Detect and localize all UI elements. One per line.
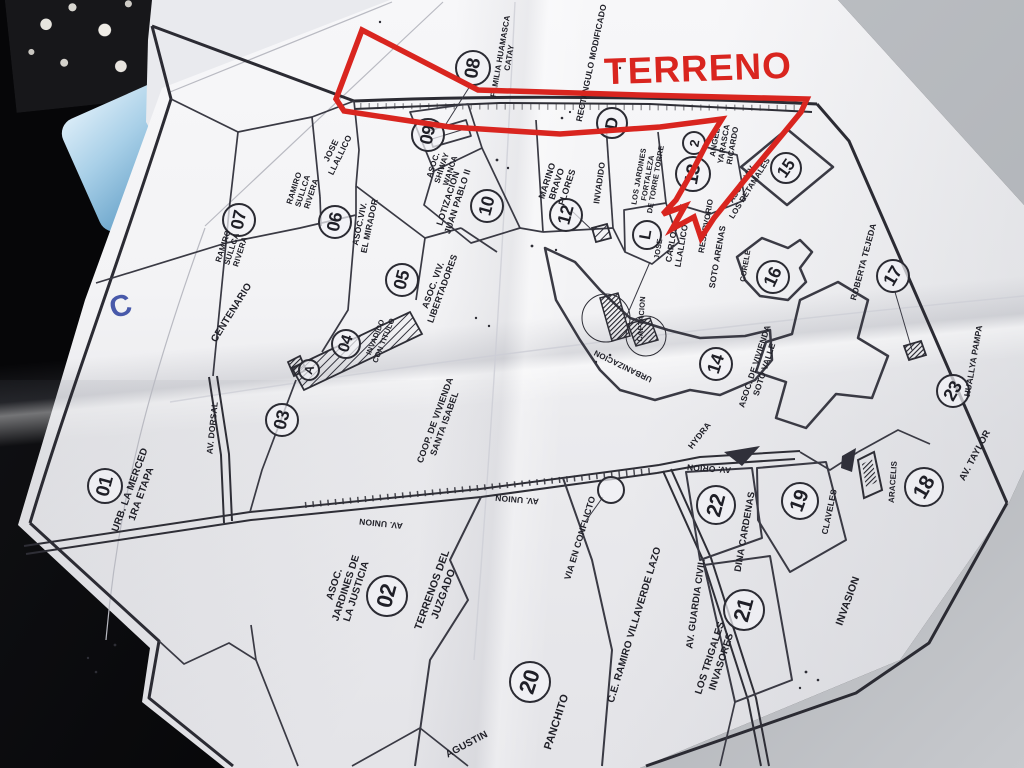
terreno-annotation bbox=[0, 0, 1024, 768]
terreno-title: TERRENO bbox=[603, 45, 792, 94]
photo-of-paper-map: 01020304A05060708091012D132L141516171819… bbox=[0, 0, 1024, 768]
